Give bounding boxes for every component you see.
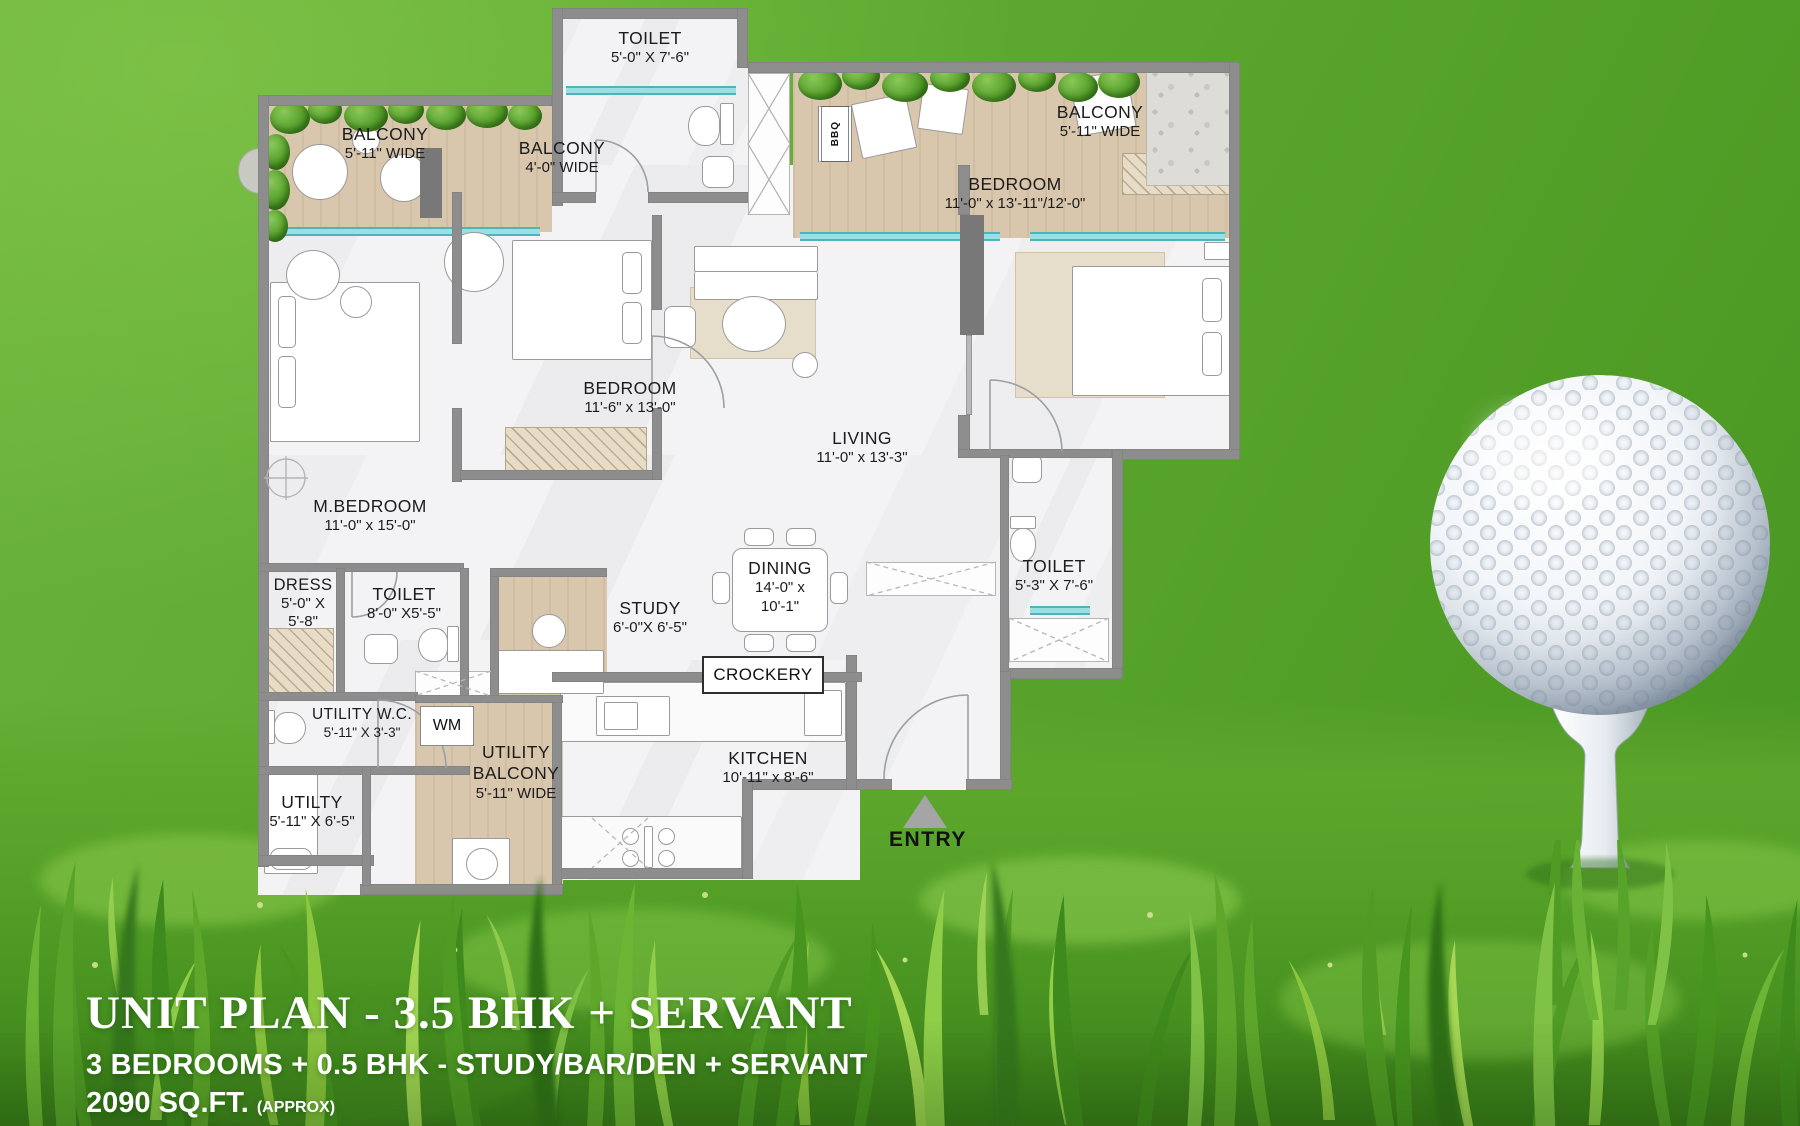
room-label-dress: DRESS 5'-0" X 5'-8" (267, 575, 339, 632)
room-dims: 11'-6" x 13'-0" (540, 399, 720, 417)
entry-arrow-icon (903, 795, 947, 828)
room-dims: 5'-0" X 5'-8" (267, 595, 339, 632)
room-name: TOILET (344, 584, 464, 605)
area-value: 2090 SQ.FT. (86, 1087, 249, 1119)
room-dims: 6'-0"X 6'-5" (595, 619, 705, 637)
room-name: BEDROOM (880, 174, 1150, 195)
room-name: DRESS (267, 575, 339, 595)
shaft-x-marks (748, 73, 790, 215)
washing-machine: WM (420, 706, 474, 746)
room-label-toilet-r: TOILET 5'-3" X 7'-6" (989, 556, 1119, 596)
room-dims: 5'-11" WIDE (1020, 123, 1180, 141)
room-label-balcony-b: BALCONY 4'-0" WIDE (492, 138, 632, 178)
plan-subtitle: 3 BEDROOMS + 0.5 BHK - STUDY/BAR/DEN + S… (86, 1049, 868, 1082)
crockery-unit: CROCKERY (702, 656, 824, 694)
room-dims: 11'-0" x 13'-11"/12'-0" (880, 195, 1150, 213)
room-name: CROCKERY (713, 665, 812, 685)
area-note: (APPROX) (257, 1099, 335, 1116)
door-arc (990, 380, 1062, 452)
wm-label: WM (433, 717, 461, 735)
room-dims: 5'-11" WIDE (460, 785, 572, 803)
room-dims: 11'-0" x 13'-3" (772, 449, 952, 467)
room-label-balcony-a: BALCONY 5'-11" WIDE (305, 124, 465, 164)
caption: UNIT PLAN - 3.5 BHK + SERVANT 3 BEDROOMS… (86, 986, 868, 1120)
plan-title: UNIT PLAN - 3.5 BHK + SERVANT (86, 986, 868, 1040)
room-dims: 5'-3" X 7'-6" (989, 577, 1119, 595)
room-name: DINING (737, 558, 823, 579)
room-name: TOILET (989, 556, 1119, 577)
room-name: TOILET (560, 28, 740, 49)
room-dims: 10'-11" x 8'-6" (683, 769, 853, 787)
room-name: UTILITY W.C. (282, 706, 442, 725)
room-label-dining: DINING 14'-0" x 10'-1" (737, 558, 823, 616)
room-label-balcony-c: BALCONY 5'-11" WIDE (1020, 102, 1180, 142)
page: BBQ (0, 0, 1800, 1126)
room-label-utility-balcony: UTILITY BALCONY 5'-11" WIDE (460, 742, 572, 803)
plan-area: 2090 SQ.FT.(APPROX) (86, 1087, 868, 1120)
room-dims: 5'-11" WIDE (305, 145, 465, 163)
room-name: STUDY (595, 598, 705, 619)
room-name: BALCONY (492, 138, 632, 159)
room-name: KITCHEN (683, 748, 853, 769)
golf-ball (1400, 360, 1800, 880)
door-arc (884, 695, 968, 779)
room-label-utility: UTILTY 5'-11" X 6'-5" (247, 792, 377, 832)
room-name: BEDROOM (540, 378, 720, 399)
room-name: UTILITY BALCONY (460, 742, 572, 785)
fan-icon (264, 456, 308, 500)
room-name: UTILTY (247, 792, 377, 813)
room-label-toilet-top: TOILET 5'-0" X 7'-6" (560, 28, 740, 68)
room-name: M.BEDROOM (265, 496, 475, 517)
room-name: LIVING (772, 428, 952, 449)
room-name: BALCONY (305, 124, 465, 145)
bbq-label: BBQ (830, 121, 841, 146)
room-dims: 11'-0" x 15'-0" (265, 517, 475, 535)
room-name: BALCONY (1020, 102, 1180, 123)
room-dims: 5'-11" X 6'-5" (247, 813, 377, 831)
room-label-utility-wc: UTILITY W.C. 5'-11" X 3'-3" (282, 706, 442, 741)
room-label-mbedroom: M.BEDROOM 11'-0" x 15'-0" (265, 496, 475, 536)
room-dims: 14'-0" x 10'-1" (737, 579, 823, 616)
room-label-living: LIVING 11'-0" x 13'-3" (772, 428, 952, 468)
room-label-toilet-mid: TOILET 8'-0" X5'-5" (344, 584, 464, 624)
room-dims: 8'-0" X5'-5" (344, 605, 464, 623)
room-dims: 5'-11" X 3'-3" (282, 725, 442, 741)
room-label-study: STUDY 6'-0"X 6'-5" (595, 598, 705, 638)
room-label-kitchen: KITCHEN 10'-11" x 8'-6" (683, 748, 853, 788)
room-dims: 4'-0" WIDE (492, 159, 632, 177)
room-label-bedroom-tr: BEDROOM 11'-0" x 13'-11"/12'-0" (880, 174, 1150, 214)
bbq-table: BBQ (818, 106, 852, 162)
room-dims: 5'-0" X 7'-6" (560, 49, 740, 67)
room-label-bedroom-mid: BEDROOM 11'-6" x 13'-0" (540, 378, 720, 418)
